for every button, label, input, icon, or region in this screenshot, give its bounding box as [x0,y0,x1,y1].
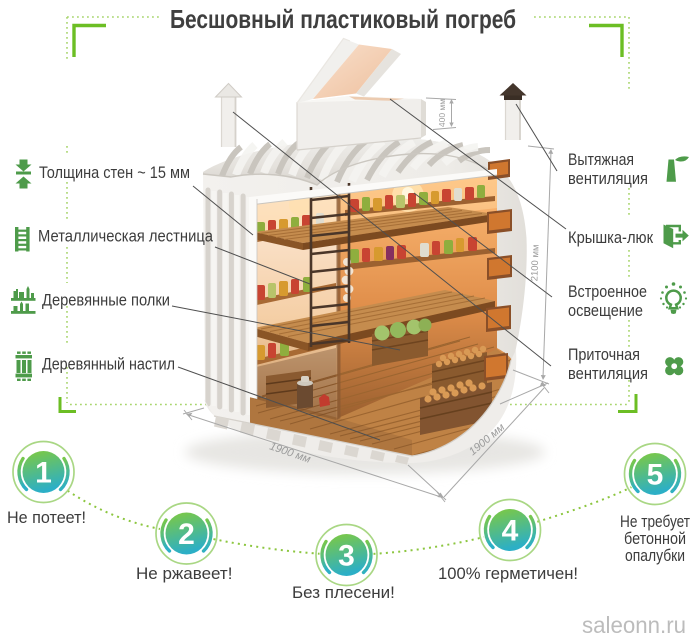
svg-text:2: 2 [178,518,195,551]
svg-text:100% герметичен!: 100% герметичен! [438,564,578,583]
svg-text:3: 3 [338,540,355,573]
svg-text:Вытяжная: Вытяжная [568,151,634,169]
svg-text:Не ржавеет!: Не ржавеет! [136,564,232,583]
svg-text:2100 мм: 2100 мм [529,244,541,281]
svg-text:вентиляция: вентиляция [568,170,648,188]
svg-text:Деревянный настил: Деревянный настил [42,356,175,374]
svg-text:Крышка-люк: Крышка-люк [568,229,654,247]
svg-text:Не потеет!: Не потеет! [7,508,86,527]
svg-text:Встроенное: Встроенное [568,283,647,301]
svg-text:4: 4 [502,515,519,548]
svg-text:Без плесени!: Без плесени! [292,583,395,602]
svg-text:1: 1 [35,457,52,490]
svg-text:Толщина стен ~ 15 мм: Толщина стен ~ 15 мм [39,164,190,182]
svg-text:400 мм: 400 мм [437,99,447,127]
svg-text:Деревянные полки: Деревянные полки [42,292,170,310]
svg-text:Бесшовный пластиковый погреб: Бесшовный пластиковый погреб [170,4,516,34]
svg-text:Металлическая лестница: Металлическая лестница [38,228,214,246]
svg-text:опалубки: опалубки [625,546,685,565]
svg-text:saleonn.ru: saleonn.ru [582,612,686,638]
svg-text:вентиляция: вентиляция [568,365,648,383]
svg-text:освещение: освещение [568,302,643,320]
svg-text:5: 5 [647,459,664,492]
svg-text:Приточная: Приточная [568,346,640,364]
